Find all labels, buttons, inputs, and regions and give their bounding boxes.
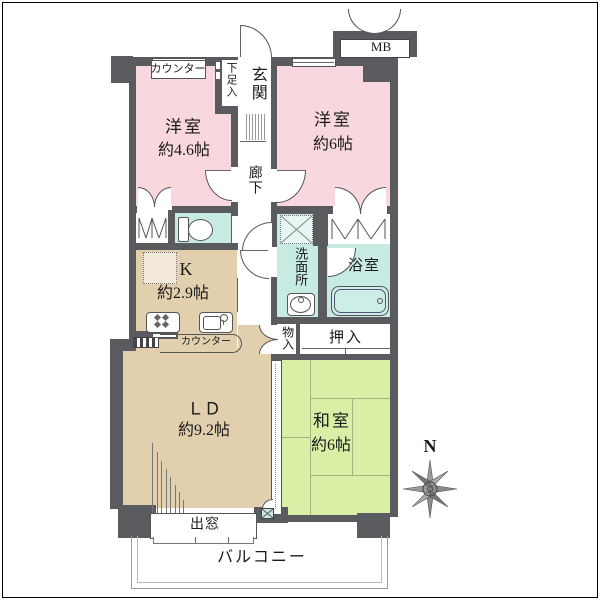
floor-plan: カウンター 下足入 玄関 MB 洋室 約4.6帖 洋室 約6帖 廊下 K 約2.… (0, 0, 600, 600)
image-border (2, 2, 598, 598)
